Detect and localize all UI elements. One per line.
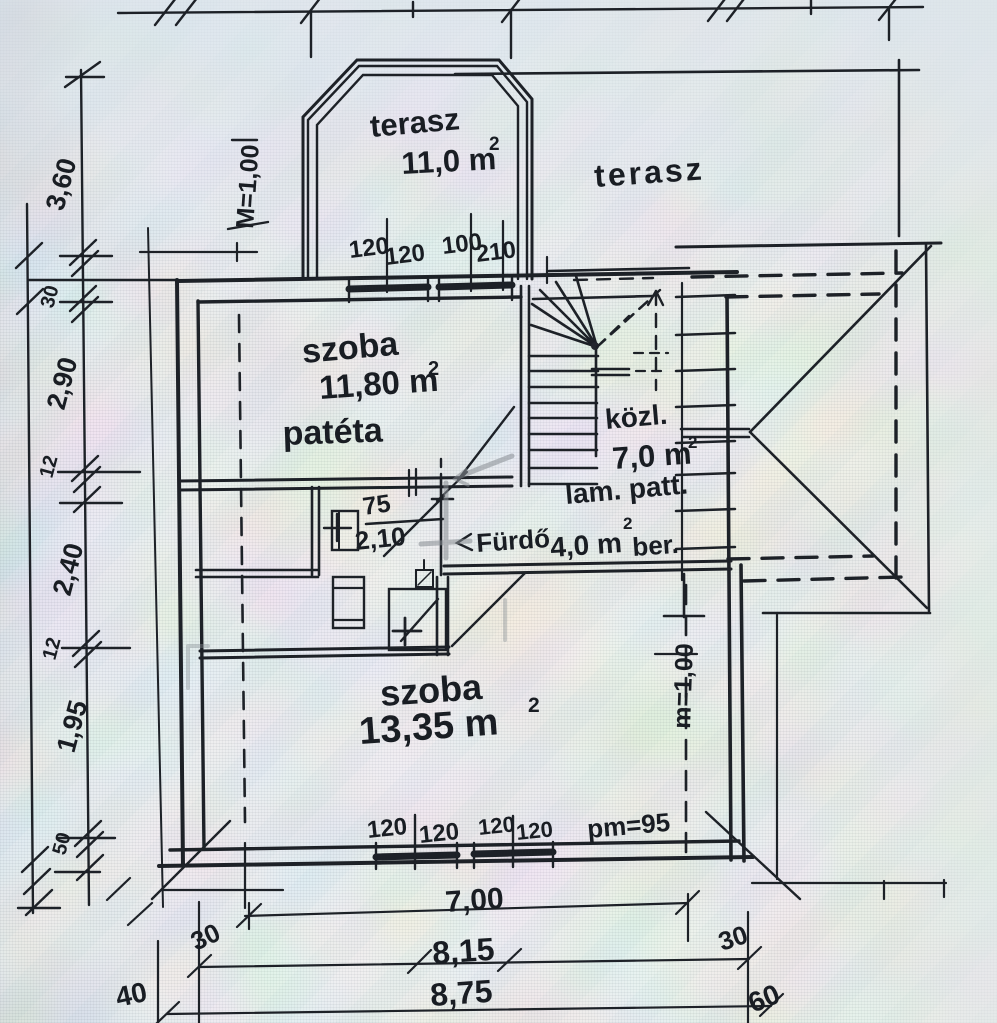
svg-text:M=1,00: M=1,00 bbox=[231, 144, 265, 230]
svg-text:8,15: 8,15 bbox=[431, 931, 496, 971]
svg-text:2: 2 bbox=[428, 358, 439, 380]
svg-text:közl.: közl. bbox=[604, 399, 669, 435]
svg-text:13,35 m: 13,35 m bbox=[358, 701, 500, 753]
svg-text:2,40: 2,40 bbox=[47, 540, 90, 599]
svg-text:2: 2 bbox=[623, 514, 632, 533]
svg-text:patéta: patéta bbox=[282, 411, 384, 453]
svg-text:2: 2 bbox=[489, 134, 500, 155]
svg-text:2: 2 bbox=[688, 433, 697, 452]
svg-text:40: 40 bbox=[113, 976, 150, 1013]
svg-text:50: 50 bbox=[49, 830, 76, 857]
svg-text:lam. patt.: lam. patt. bbox=[564, 468, 689, 510]
svg-text:120: 120 bbox=[383, 239, 426, 271]
svg-text:12: 12 bbox=[36, 453, 63, 480]
svg-text:2,90: 2,90 bbox=[41, 354, 84, 413]
svg-text:120: 120 bbox=[366, 813, 409, 844]
svg-text:ber.: ber. bbox=[631, 529, 679, 562]
svg-text:30: 30 bbox=[715, 919, 752, 956]
svg-text:120: 120 bbox=[477, 811, 516, 840]
svg-text:11,0 m: 11,0 m bbox=[401, 141, 498, 181]
svg-text:terasz: terasz bbox=[593, 150, 706, 194]
svg-text:120: 120 bbox=[418, 818, 461, 849]
svg-text:30: 30 bbox=[37, 283, 64, 310]
svg-text:3,60: 3,60 bbox=[40, 155, 83, 214]
svg-text:11,80 m: 11,80 m bbox=[318, 361, 440, 406]
svg-text:12: 12 bbox=[39, 635, 66, 662]
svg-text:4,0 m: 4,0 m bbox=[549, 527, 623, 563]
svg-text:120: 120 bbox=[515, 816, 554, 845]
svg-text:7,00: 7,00 bbox=[444, 882, 505, 919]
svg-text:2: 2 bbox=[528, 694, 540, 717]
svg-text:75: 75 bbox=[361, 489, 393, 521]
svg-text:30: 30 bbox=[186, 917, 225, 956]
svg-text:210: 210 bbox=[474, 236, 517, 268]
svg-text:60: 60 bbox=[744, 978, 785, 1018]
svg-text:pm=95: pm=95 bbox=[586, 807, 671, 844]
svg-text:terasz: terasz bbox=[369, 101, 461, 144]
svg-text:2,10: 2,10 bbox=[353, 521, 406, 556]
svg-text:Fürdő: Fürdő bbox=[475, 523, 551, 558]
svg-text:m=1,00: m=1,00 bbox=[668, 643, 699, 729]
svg-text:8,75: 8,75 bbox=[429, 973, 494, 1013]
